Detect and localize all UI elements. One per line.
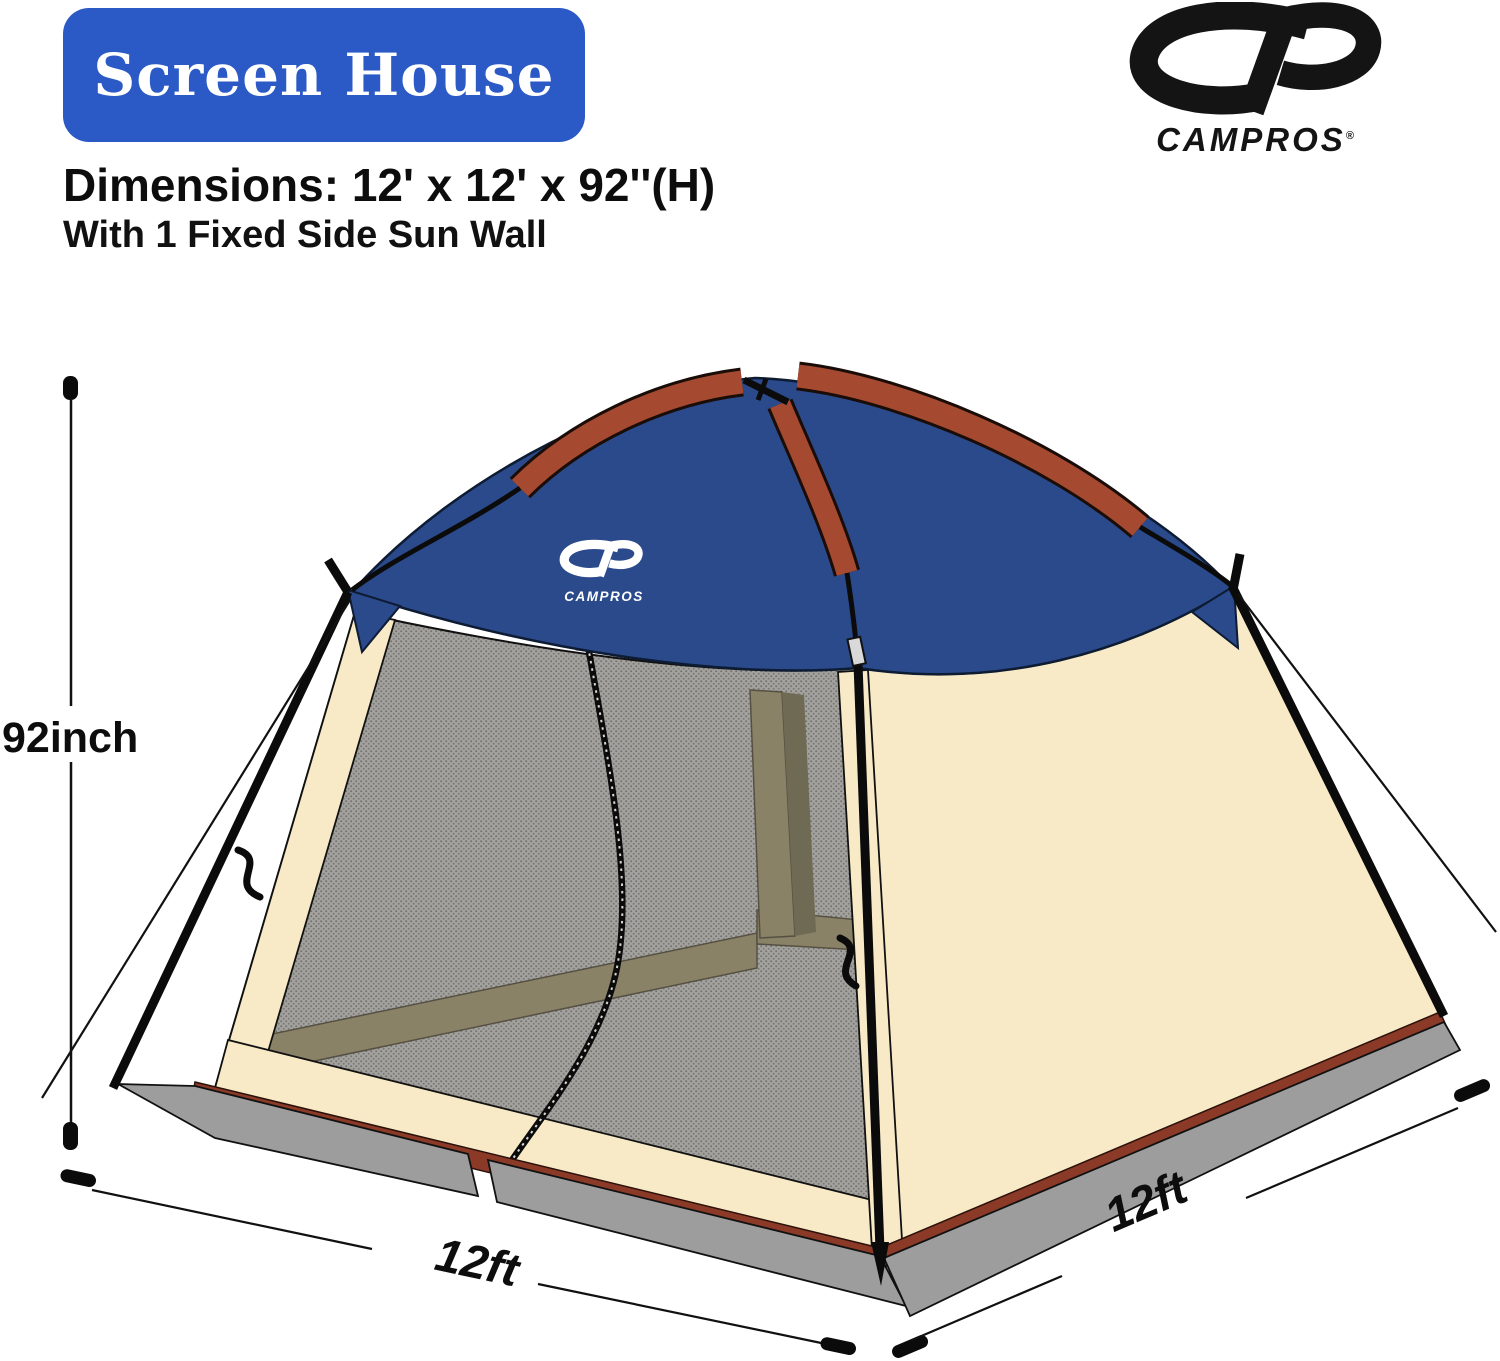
corner-pole-left-tip bbox=[328, 560, 348, 592]
height-dimension: 92inch bbox=[2, 376, 138, 1150]
tieback-hook-left bbox=[238, 850, 260, 897]
height-label: 92inch bbox=[2, 714, 138, 762]
front-width-label: 12ft bbox=[431, 1227, 526, 1297]
screen-house-illustration: CAMPROS 92inch 12ft bbox=[0, 0, 1500, 1361]
corner-pole-right-tip bbox=[1233, 554, 1240, 590]
canopy-brand-name: CAMPROS bbox=[564, 589, 644, 604]
